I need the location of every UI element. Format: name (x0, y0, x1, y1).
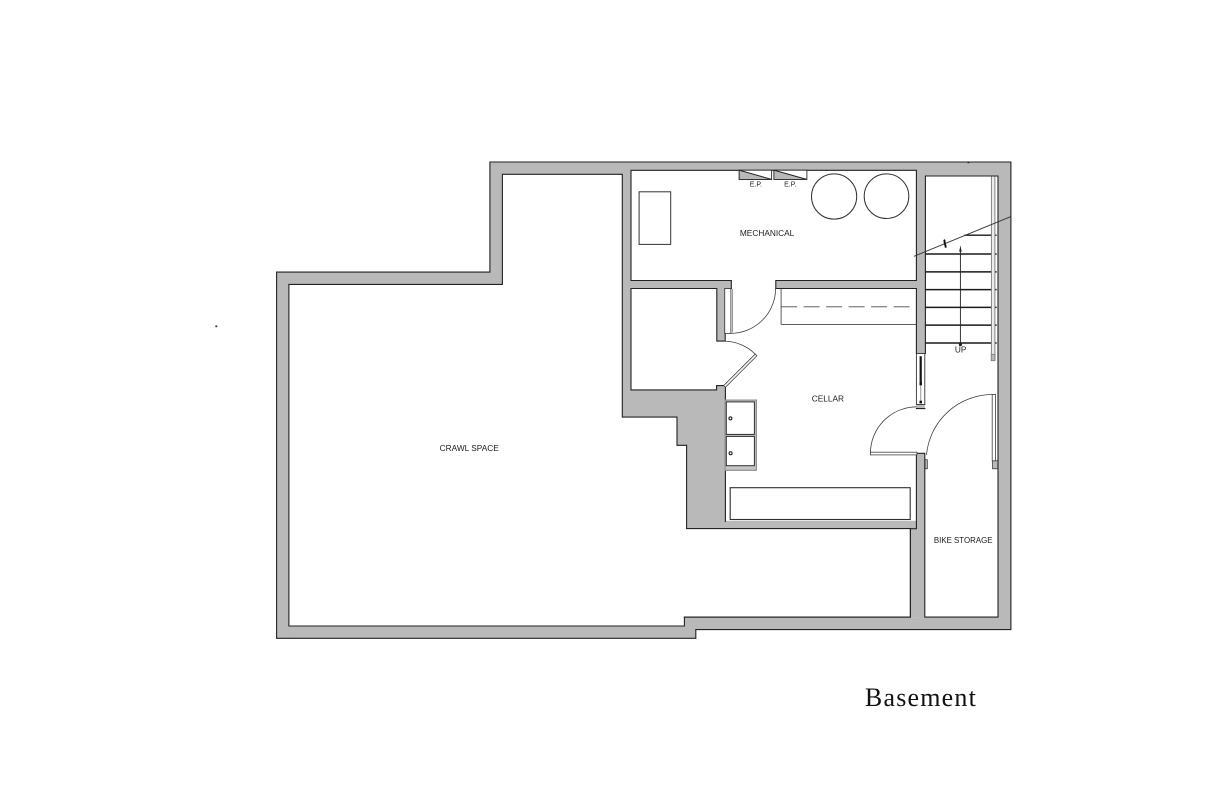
svg-text:CRAWL SPACE: CRAWL SPACE (440, 443, 500, 453)
svg-text:BIKE STORAGE: BIKE STORAGE (934, 536, 993, 545)
svg-text:E.P.: E.P. (784, 181, 796, 188)
svg-text:E.P.: E.P. (750, 181, 762, 188)
svg-text:UP: UP (955, 345, 967, 355)
svg-text:MECHANICAL: MECHANICAL (740, 228, 795, 238)
svg-text:CELLAR: CELLAR (812, 394, 844, 404)
